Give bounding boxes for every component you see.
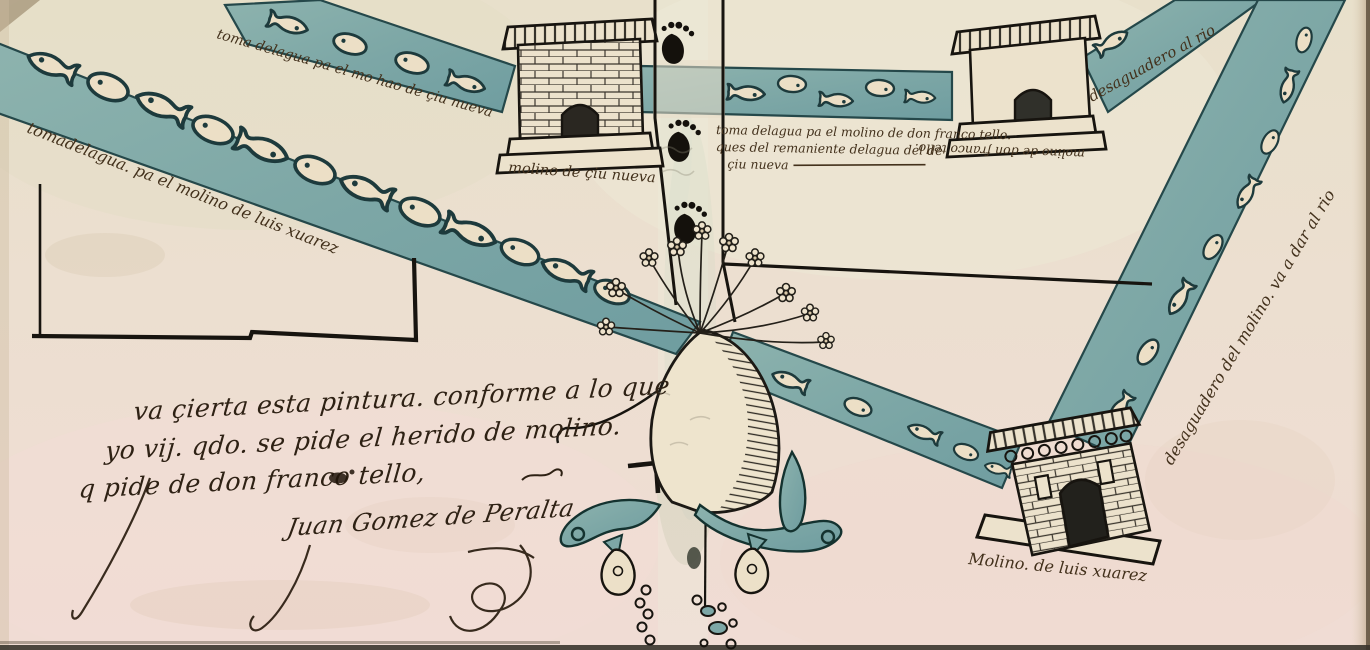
manuscript-map: tomadelagua. pa el molino de luis xuarez…	[0, 0, 1370, 650]
map-canvas: tomadelagua. pa el molino de luis xuarez…	[0, 0, 1370, 650]
window	[1097, 460, 1114, 484]
road-over-water	[653, 60, 725, 118]
ink-blot-dot	[350, 470, 355, 475]
window	[1035, 475, 1052, 499]
ink-smudge	[687, 547, 701, 569]
fish-icon	[777, 75, 806, 93]
label-intake-tello-line3: çiu nueva	[727, 156, 788, 172]
mill-tower-new-city	[497, 19, 663, 173]
ink-blot	[329, 473, 347, 484]
fish-icon	[865, 79, 894, 97]
